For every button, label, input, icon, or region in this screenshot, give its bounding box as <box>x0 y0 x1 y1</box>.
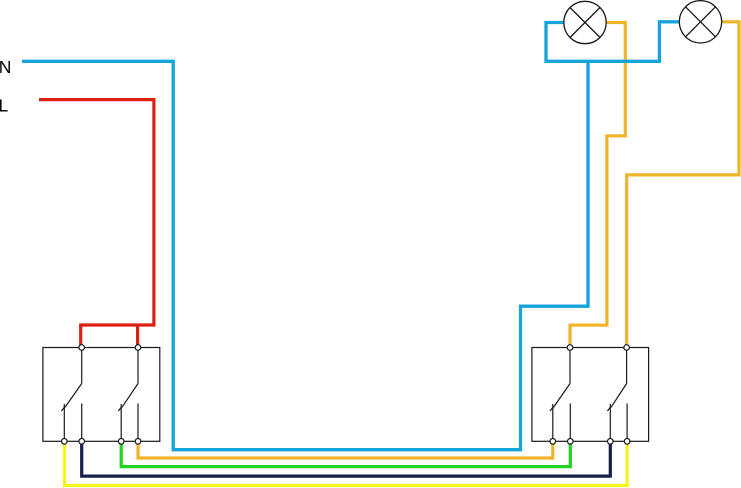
svg-text:L: L <box>0 96 9 116</box>
svg-text:N: N <box>0 57 11 77</box>
